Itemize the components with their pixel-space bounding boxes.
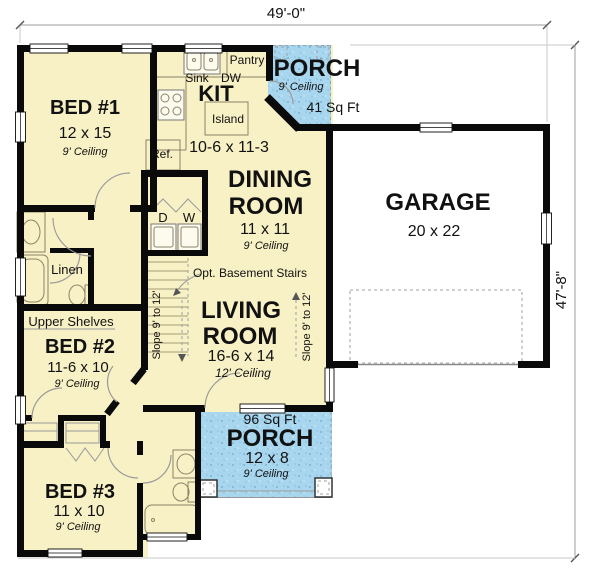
bed3-top-wall	[104, 441, 110, 448]
garage-size: 20 x 22	[408, 223, 461, 240]
bed1-bottom-wall	[17, 205, 95, 212]
bed3-bath2-wall	[137, 441, 143, 455]
bath1-wall	[88, 212, 94, 220]
floor-plan-drawing: 49'-0" 47'-8" BED #1 12 x 15 9' Ceiling …	[0, 0, 600, 569]
bed1-ceiling: 9' Ceiling	[63, 146, 109, 158]
living-name-line2: ROOM	[203, 323, 278, 350]
kitchen-name: KIT	[198, 81, 234, 106]
dining-ceiling: 9' Ceiling	[244, 240, 290, 252]
porch-top-name: PORCH	[274, 55, 361, 82]
floor-plan-page: 49'-0" 47'-8" BED #1 12 x 15 9' Ceiling …	[0, 0, 600, 569]
bed3-ceiling: 9' Ceiling	[56, 521, 102, 533]
rear-porch-column	[315, 478, 332, 497]
bath2-right-wall	[195, 412, 201, 540]
dining-name-line2: ROOM	[229, 193, 304, 220]
hall-east-wall	[141, 170, 148, 370]
bed2-size: 11-6 x 10	[47, 359, 108, 376]
dining-name-line1: DINING	[228, 166, 312, 193]
garage-wall-right	[543, 124, 550, 368]
porch-bottom-size: 12 x 8	[245, 450, 289, 467]
laundry-right-wall	[202, 177, 208, 256]
bed3-name: BED #3	[45, 481, 115, 503]
basement-stairs-note: Opt. Basement Stairs	[193, 266, 307, 280]
pantry-label: Pantry	[230, 53, 265, 67]
washer-label: W	[183, 210, 196, 225]
linen-label: Linen	[51, 262, 83, 277]
bed2-name: BED #2	[45, 336, 115, 358]
bed2-bottom-wall	[62, 415, 104, 421]
dining-size: 11 x 11	[240, 221, 290, 238]
garage-wall-bottom-stub	[332, 361, 358, 368]
living-south-wall	[143, 405, 205, 412]
dryer-label: D	[158, 210, 167, 225]
porch-left-wall	[266, 45, 273, 81]
bed3-top-wall	[17, 441, 64, 448]
bed3-size: 11 x 10	[53, 503, 104, 520]
porch-top-ceiling: 9' Ceiling	[279, 81, 325, 93]
stove-fixture	[158, 90, 184, 120]
living-name-line1: LIVING	[201, 297, 281, 324]
bed1-kitchen-wall	[150, 45, 157, 212]
garage-wall-bottom-stub	[518, 361, 550, 368]
living-size: 16-6 x 14	[208, 348, 275, 365]
bath1-wall	[88, 248, 94, 310]
width-dimension-label: 49'-0"	[267, 5, 305, 22]
bed2-ceiling: 9' Ceiling	[55, 378, 101, 390]
bed1-size: 12 x 15	[59, 125, 112, 142]
upper-shelves-label: Upper Shelves	[28, 314, 114, 329]
garage-door-outline	[350, 290, 522, 363]
laundry-bottom-wall	[141, 250, 208, 256]
garage-details	[350, 290, 522, 365]
living-ceiling: 12' Ceiling	[215, 366, 271, 380]
island-label: Island	[212, 112, 244, 126]
porch-top-area: 41 Sq Ft	[307, 99, 360, 115]
refrigerator-label: Ref.	[151, 147, 173, 161]
kitchen-size: 10-6 x 11-3	[189, 139, 269, 156]
laundry-top-wall	[141, 170, 208, 177]
porch-bottom-ceiling: 9' Ceiling	[244, 468, 290, 480]
bed1-name: BED #1	[50, 97, 120, 119]
porch-bottom-name: PORCH	[227, 425, 314, 452]
bed2-top-wall	[17, 304, 148, 311]
slope-label-left: Slope 9' to 12'	[151, 290, 163, 359]
slope-label-right: Slope 9' to 12'	[301, 292, 313, 361]
bed3-bath2-wall	[137, 483, 143, 557]
height-dimension-label: 47'-8"	[553, 271, 570, 309]
garage-name: GARAGE	[385, 189, 490, 216]
